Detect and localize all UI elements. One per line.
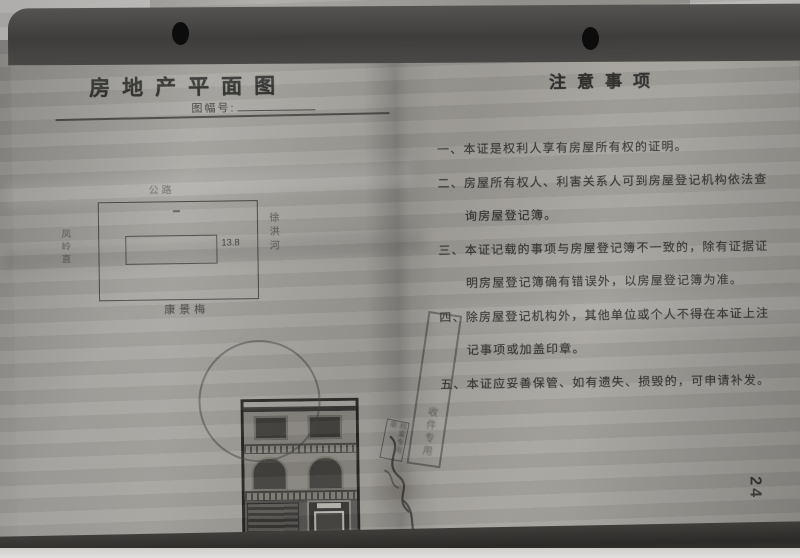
binder-punch-hole-right: [582, 27, 599, 50]
notes-item-4: 四、除房屋登记机构外，其他单位或个人不得在本证上注记事项或加盖印章。: [439, 296, 778, 368]
map-sheet-number-blank-line: [237, 99, 315, 111]
parcel-tick-mark: [173, 210, 180, 212]
parcel-boundary-outline: 13.8: [98, 200, 259, 301]
notes-item-2: 二、房屋所有权人、利害关系人可到房屋登记机构依法查询房屋登记簿。: [437, 162, 776, 234]
scanner-bed-strip: [0, 548, 800, 558]
plan-label-west-neighbor: 凤岭直: [57, 229, 72, 267]
scanned-certificate-page: 房地产平面图 图幅号: 公路 凤岭直 徐洪河 康景梅 13.8: [0, 0, 800, 558]
notes-item-1: 一、本证是权利人享有房屋所有权的证明。: [437, 129, 775, 167]
binding-strip: [8, 4, 800, 66]
building-dimension-value: 13.8: [221, 237, 240, 248]
plan-label-east-neighbor: 徐洪河: [265, 212, 281, 254]
notes-title: 注意事项: [436, 69, 774, 96]
plan-label-road: 公路: [148, 181, 174, 196]
notes-section: 注意事项 一、本证是权利人享有房屋所有权的证明。 二、房屋所有权人、利害关系人可…: [436, 69, 779, 402]
certificate-paper: 房地产平面图 图幅号: 公路 凤岭直 徐洪河 康景梅 13.8: [11, 47, 800, 538]
archive-page-number: 24: [746, 476, 764, 500]
photo-arched-window: [307, 456, 343, 490]
building-footprint-outline: [125, 235, 217, 265]
binder-punch-hole-left: [172, 22, 189, 45]
map-sheet-number-text: 图幅号:: [191, 102, 235, 115]
photo-door-sign: [317, 503, 341, 508]
floor-plan-title: 房地产平面图: [89, 70, 287, 103]
notes-item-5: 五、本证应妥善保管、如有遗失、损毁的，可申请补发。: [440, 363, 778, 401]
plan-label-south-neighbor: 康景梅: [164, 301, 209, 318]
notes-item-3: 三、本证记载的事项与房屋登记簿不一致的，除有证据证明房屋登记簿确有错误外，以房屋…: [438, 229, 777, 301]
